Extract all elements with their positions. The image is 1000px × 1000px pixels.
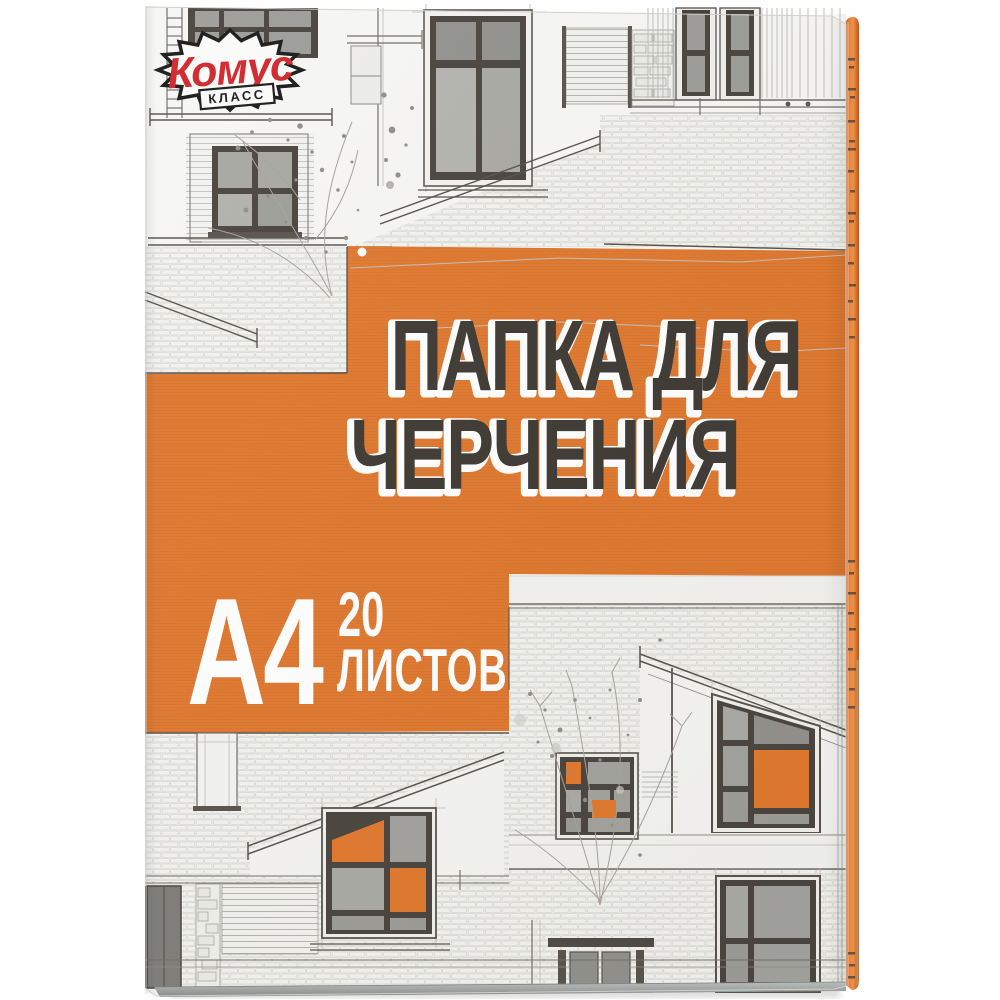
folder: ПАПКА ДЛЯ ПАПКА ДЛЯ ЧЕРЧЕНИЯ ЧЕРЧЕНИЯ А4…: [145, 4, 859, 998]
product-photo: ПАПКА ДЛЯ ПАПКА ДЛЯ ЧЕРЧЕНИЯ ЧЕРЧЕНИЯ А4…: [0, 0, 1000, 1000]
cover-shading: [146, 7, 846, 996]
fold-shade: [824, 14, 846, 990]
spine: [846, 17, 859, 990]
left-edge-shade: [145, 6, 157, 994]
folder-illustration: ПАПКА ДЛЯ ПАПКА ДЛЯ ЧЕРЧЕНИЯ ЧЕРЧЕНИЯ А4…: [0, 0, 1000, 1000]
